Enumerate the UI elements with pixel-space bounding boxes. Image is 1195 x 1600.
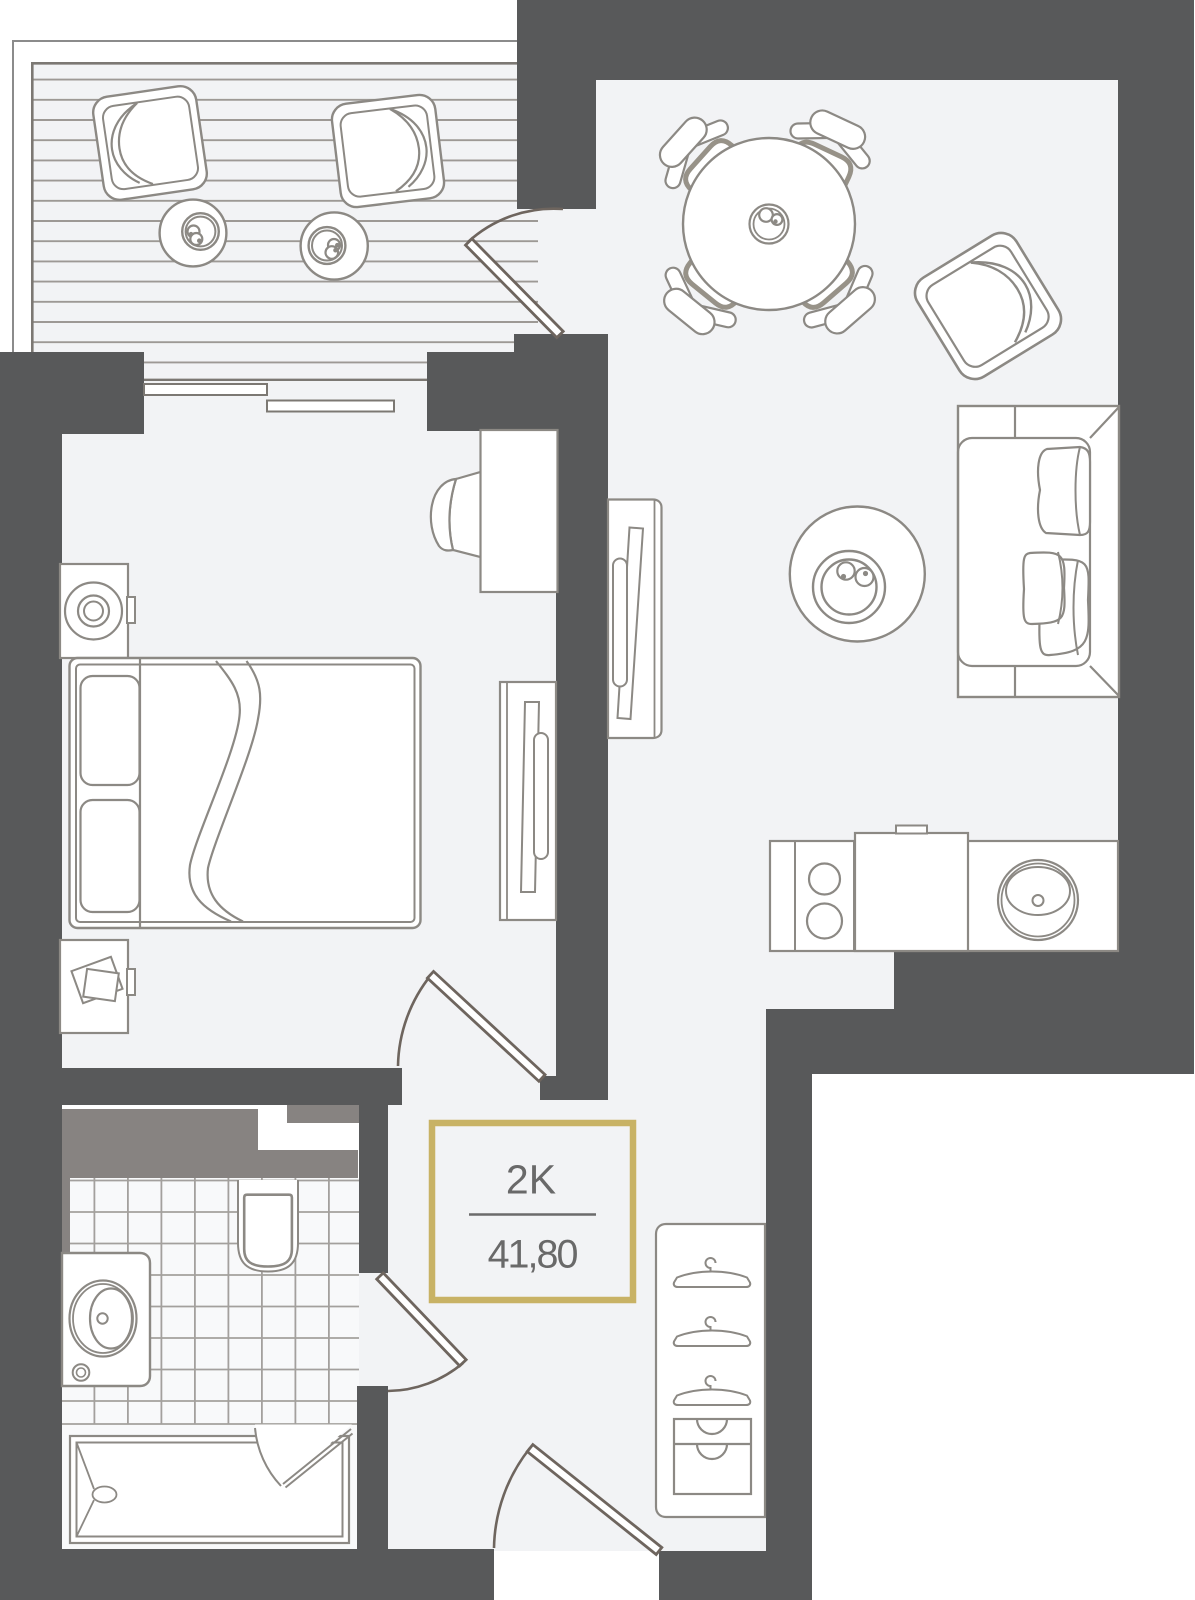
svg-text:41,80: 41,80 — [488, 1233, 578, 1277]
svg-text:2K: 2K — [506, 1157, 556, 1203]
